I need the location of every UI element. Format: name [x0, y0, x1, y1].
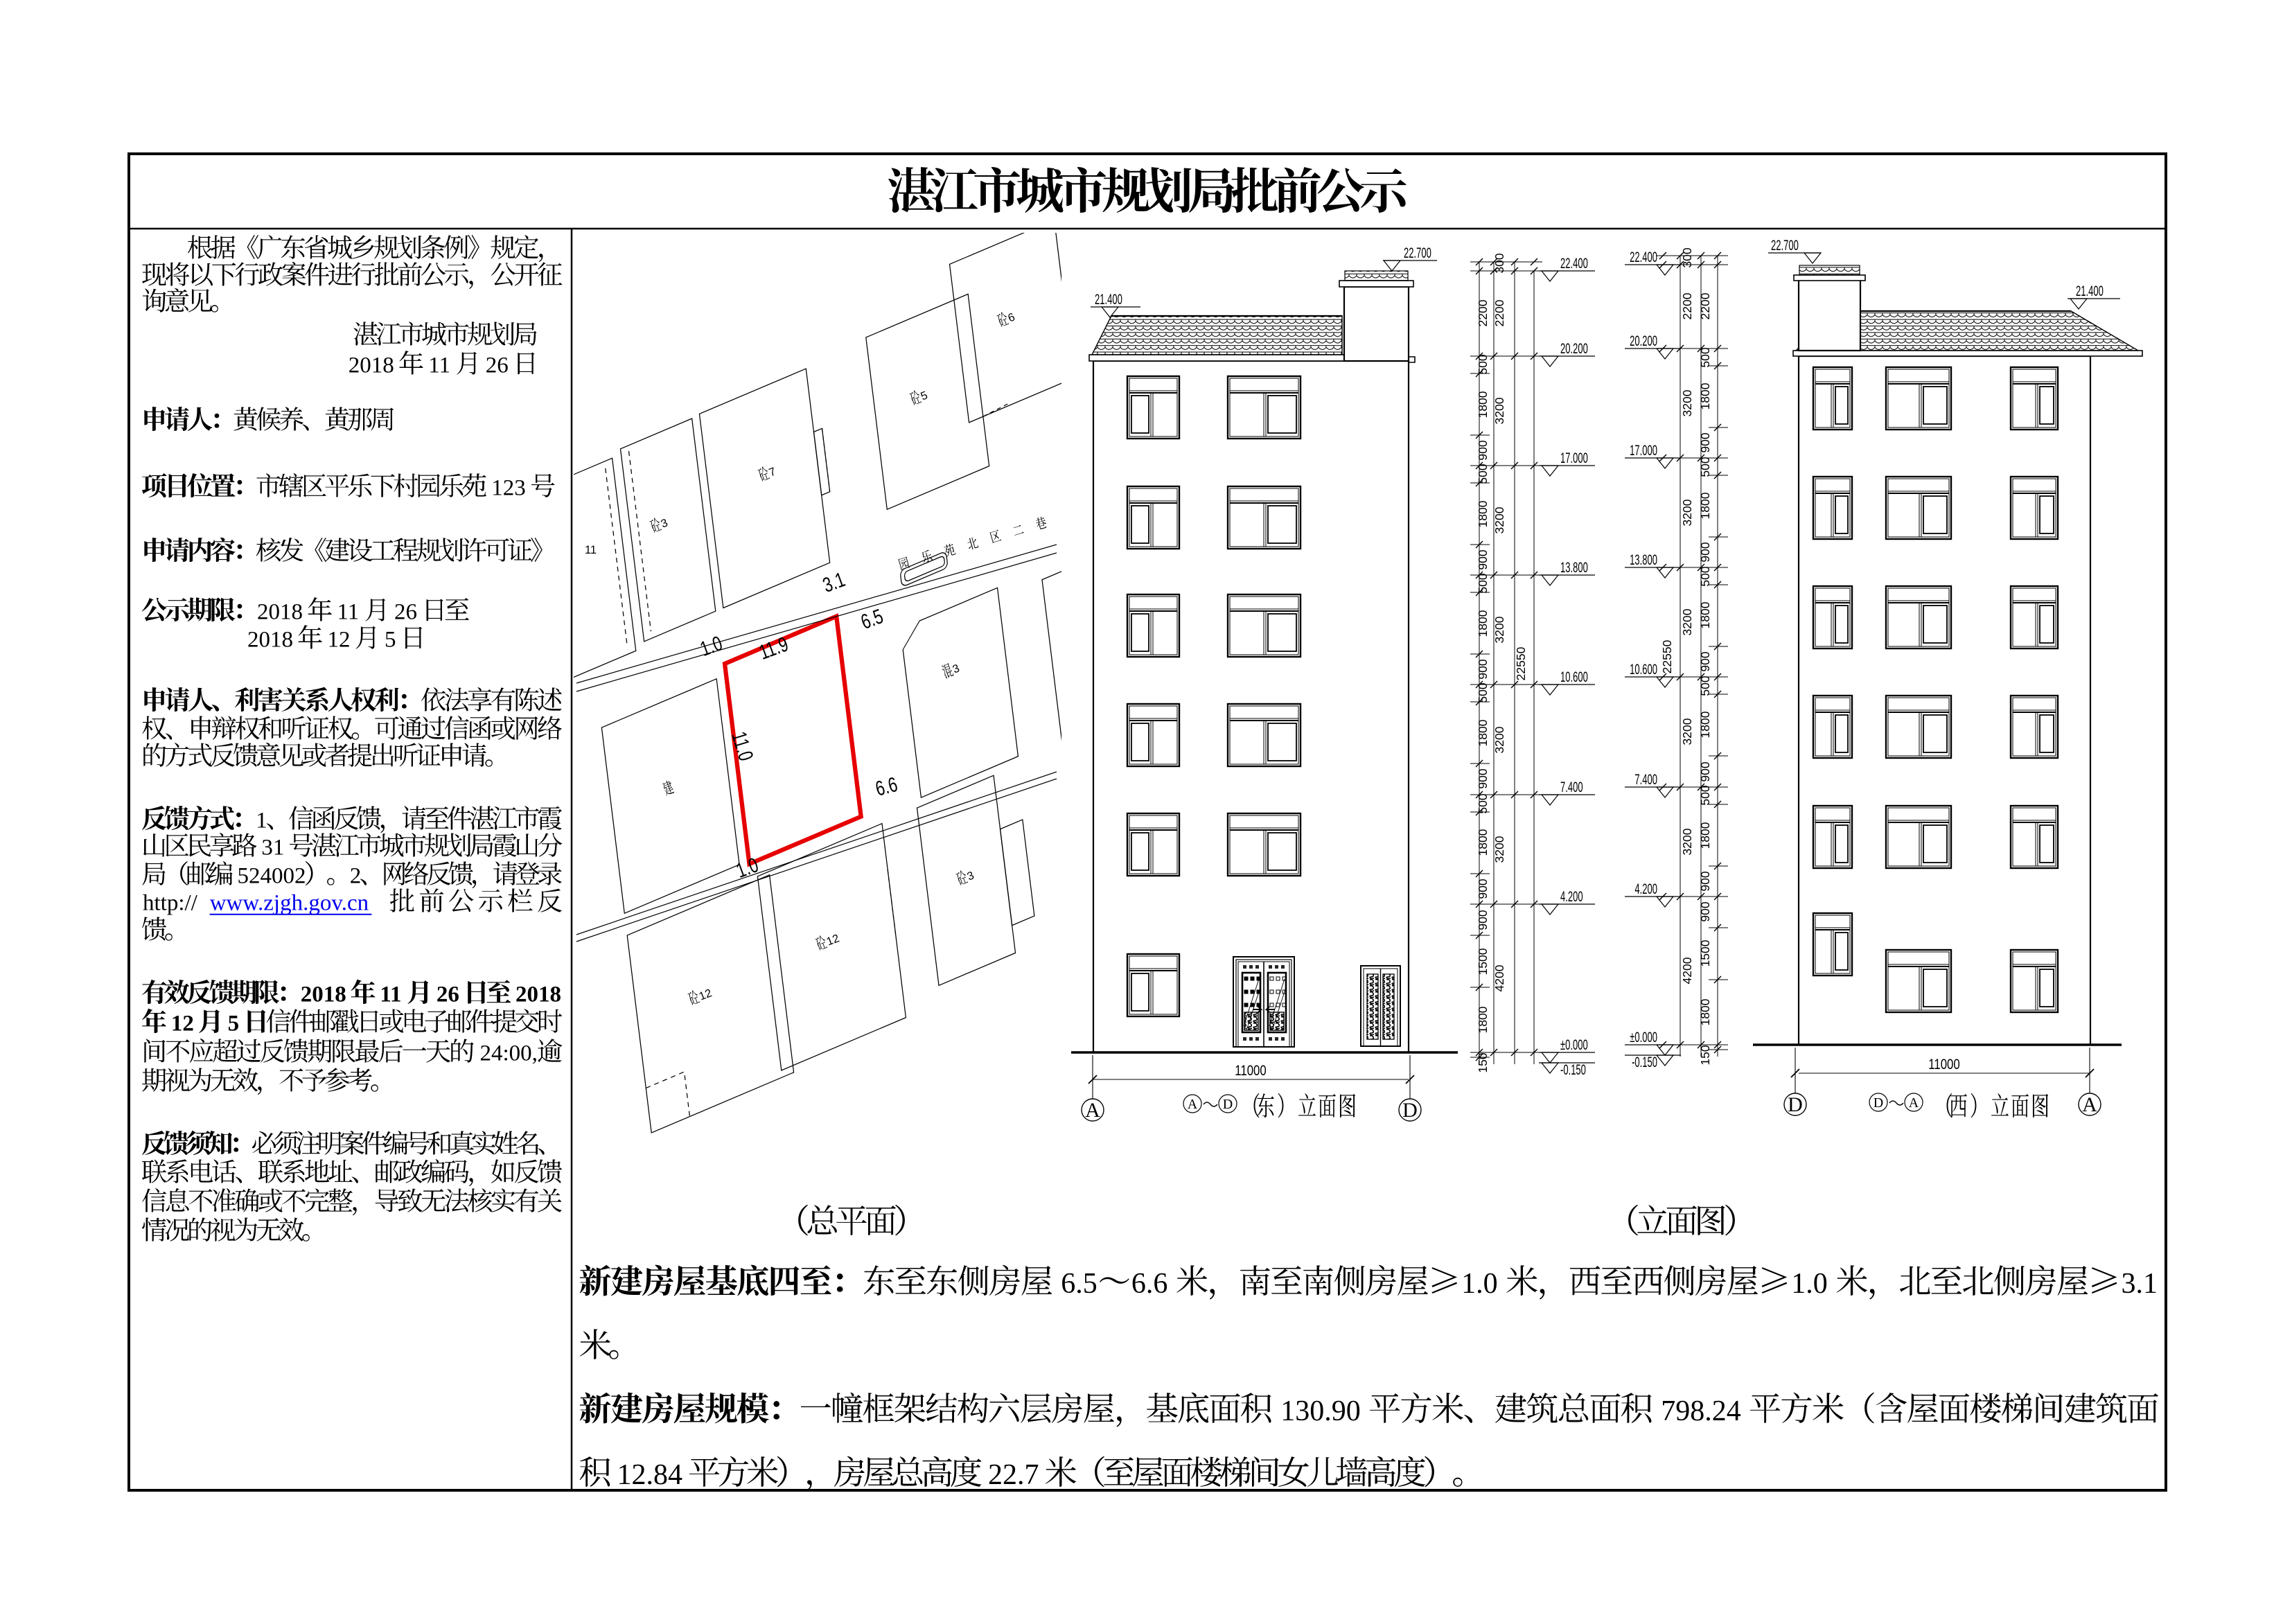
svg-text:2: 2 — [350, 864, 362, 889]
svg-text:123: 123 — [486, 476, 531, 501]
svg-text:500: 500 — [1698, 347, 1712, 367]
svg-text:3200: 3200 — [1492, 506, 1506, 533]
svg-text:3200: 3200 — [1492, 836, 1506, 863]
svg-text:900: 900 — [1698, 651, 1712, 671]
svg-text:2018: 2018 — [510, 982, 561, 1007]
svg-text:3200: 3200 — [1680, 499, 1694, 526]
svg-text:500: 500 — [1476, 354, 1490, 374]
svg-text:130.90: 130.90 — [1273, 1395, 1368, 1427]
svg-text:3200: 3200 — [1492, 726, 1506, 753]
svg-text:900: 900 — [1698, 901, 1712, 921]
svg-text:500: 500 — [1698, 457, 1712, 477]
svg-text:500: 500 — [1698, 785, 1712, 805]
svg-text:22.700: 22.700 — [1404, 245, 1431, 261]
svg-text:1800: 1800 — [1476, 719, 1490, 746]
svg-text:31: 31 — [256, 836, 290, 860]
svg-text:500: 500 — [1476, 464, 1490, 484]
svg-text:24:00,: 24:00, — [474, 1041, 538, 1066]
svg-text:1: 1 — [256, 809, 267, 833]
svg-text:26: 26 — [389, 600, 423, 625]
svg-text:1800: 1800 — [1476, 500, 1490, 527]
svg-text:5: 5 — [379, 628, 402, 653]
svg-text:2018: 2018 — [247, 628, 299, 653]
svg-text:3200: 3200 — [1680, 608, 1694, 635]
svg-text:300: 300 — [1680, 247, 1694, 267]
svg-text:10.600: 10.600 — [1560, 669, 1588, 685]
svg-text:12: 12 — [166, 1012, 200, 1036]
svg-text:1800: 1800 — [1698, 382, 1712, 409]
svg-text:21.400: 21.400 — [2076, 283, 2104, 299]
svg-text:A: A — [1909, 1095, 1919, 1111]
svg-text:900: 900 — [1698, 542, 1712, 562]
svg-text:500: 500 — [1476, 793, 1490, 813]
svg-text:www.zjgh.gov.cn: www.zjgh.gov.cn — [210, 891, 369, 916]
svg-text:±0.000: ±0.000 — [1630, 1029, 1657, 1045]
svg-text:2200: 2200 — [1492, 299, 1506, 326]
svg-text:150: 150 — [1698, 1045, 1712, 1065]
svg-text:22.7: 22.7 — [981, 1459, 1047, 1491]
svg-text:500: 500 — [1476, 682, 1490, 703]
svg-text:2018: 2018 — [349, 353, 400, 378]
svg-text:900: 900 — [1698, 871, 1712, 891]
svg-text:1800: 1800 — [1698, 601, 1712, 628]
svg-text:-0.150: -0.150 — [1632, 1054, 1657, 1070]
svg-text:3200: 3200 — [1492, 616, 1506, 643]
svg-text:13.800: 13.800 — [1560, 559, 1588, 576]
svg-text:1.0: 1.0 — [1461, 1268, 1505, 1300]
svg-text:22550: 22550 — [1660, 639, 1674, 673]
svg-text:900: 900 — [1698, 432, 1712, 452]
svg-text:D: D — [1402, 1099, 1418, 1122]
svg-text:2018: 2018 — [257, 600, 308, 625]
svg-text:6.6: 6.6 — [1131, 1268, 1175, 1300]
svg-text:17.000: 17.000 — [1560, 450, 1588, 466]
svg-text:300: 300 — [1492, 253, 1506, 273]
svg-text:D: D — [1223, 1097, 1233, 1112]
svg-text:1800: 1800 — [1698, 822, 1712, 849]
svg-text:1500: 1500 — [1476, 948, 1490, 975]
svg-text:11000: 11000 — [1928, 1057, 1959, 1073]
svg-text:900: 900 — [1476, 549, 1490, 570]
svg-text:2200: 2200 — [1680, 292, 1694, 319]
svg-text:4.200: 4.200 — [1560, 888, 1583, 905]
svg-text:13.800: 13.800 — [1630, 551, 1657, 568]
svg-text:http://: http:// — [143, 891, 203, 916]
svg-text:900: 900 — [1476, 768, 1490, 788]
svg-text:7.400: 7.400 — [1634, 771, 1657, 788]
svg-text:±0.000: ±0.000 — [1560, 1036, 1588, 1053]
svg-text:500: 500 — [1698, 566, 1712, 586]
svg-text:11: 11 — [423, 353, 456, 378]
svg-text:26: 26 — [431, 982, 466, 1007]
svg-text:900: 900 — [1476, 440, 1490, 460]
svg-text:22.400: 22.400 — [1630, 249, 1657, 265]
svg-text:22.400: 22.400 — [1560, 255, 1588, 272]
svg-text:900: 900 — [1698, 761, 1712, 782]
svg-text:1800: 1800 — [1476, 391, 1490, 418]
svg-text:900: 900 — [1476, 659, 1490, 679]
svg-text:900: 900 — [1476, 879, 1490, 899]
svg-text:11: 11 — [585, 544, 597, 556]
svg-text:26: 26 — [480, 353, 515, 378]
svg-text:2200: 2200 — [1476, 299, 1490, 326]
svg-text:1800: 1800 — [1698, 492, 1712, 519]
svg-text:D: D — [1788, 1093, 1803, 1116]
svg-text:D: D — [1874, 1095, 1883, 1111]
svg-text:1800: 1800 — [1476, 829, 1490, 856]
svg-text:524002: 524002 — [231, 864, 306, 889]
svg-text:11: 11 — [374, 982, 407, 1007]
svg-text:4200: 4200 — [1680, 957, 1694, 984]
svg-text:1800: 1800 — [1476, 610, 1490, 637]
svg-text:22550: 22550 — [1514, 646, 1528, 680]
svg-text:1800: 1800 — [1698, 998, 1712, 1025]
svg-text:20.200: 20.200 — [1630, 333, 1657, 349]
svg-text:6.5: 6.5 — [1054, 1268, 1097, 1300]
svg-text:A: A — [2082, 1093, 2097, 1116]
svg-text:2200: 2200 — [1698, 292, 1712, 319]
svg-text:3200: 3200 — [1680, 828, 1694, 855]
svg-text:11000: 11000 — [1235, 1063, 1266, 1079]
svg-text:1500: 1500 — [1698, 939, 1712, 967]
svg-text:20.200: 20.200 — [1560, 340, 1588, 357]
svg-text:500: 500 — [1698, 676, 1712, 696]
svg-text:500: 500 — [1476, 573, 1490, 593]
svg-text:900: 900 — [1476, 910, 1490, 930]
svg-text:4.200: 4.200 — [1634, 881, 1657, 897]
svg-text:5: 5 — [222, 1012, 245, 1036]
svg-text:-0.150: -0.150 — [1560, 1061, 1586, 1078]
svg-text:1800: 1800 — [1476, 1006, 1490, 1033]
svg-text:A: A — [1188, 1097, 1198, 1112]
svg-text:3.1: 3.1 — [2122, 1268, 2158, 1300]
svg-text:3200: 3200 — [1680, 718, 1694, 745]
svg-text:2018: 2018 — [301, 982, 352, 1007]
svg-text:17.000: 17.000 — [1630, 442, 1657, 459]
svg-text:12.84: 12.84 — [610, 1459, 690, 1491]
svg-text:22.700: 22.700 — [1771, 237, 1799, 254]
svg-text:4200: 4200 — [1492, 964, 1506, 991]
svg-text:798.24: 798.24 — [1654, 1395, 1749, 1427]
svg-text:11: 11 — [331, 600, 364, 625]
svg-text:12: 12 — [321, 628, 356, 653]
svg-text:150: 150 — [1476, 1052, 1490, 1073]
svg-text:3200: 3200 — [1492, 397, 1506, 424]
svg-text:3200: 3200 — [1680, 389, 1694, 416]
svg-text:1.0: 1.0 — [1791, 1268, 1835, 1300]
svg-text:A: A — [1085, 1099, 1100, 1122]
svg-text:10.600: 10.600 — [1630, 661, 1657, 678]
svg-text:1800: 1800 — [1698, 711, 1712, 738]
svg-text:7.400: 7.400 — [1560, 779, 1583, 795]
svg-text:21.400: 21.400 — [1095, 291, 1122, 308]
